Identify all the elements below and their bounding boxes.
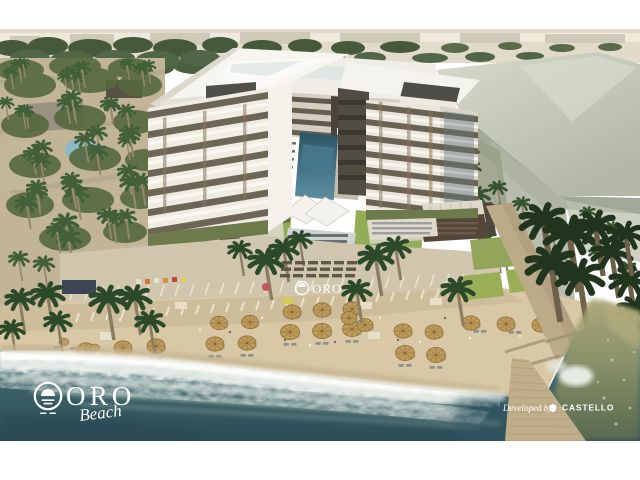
svg-text:Developed by: Developed by xyxy=(502,403,552,413)
svg-text:CASTELLO: CASTELLO xyxy=(562,403,614,413)
svg-text:ORO: ORO xyxy=(312,281,342,296)
